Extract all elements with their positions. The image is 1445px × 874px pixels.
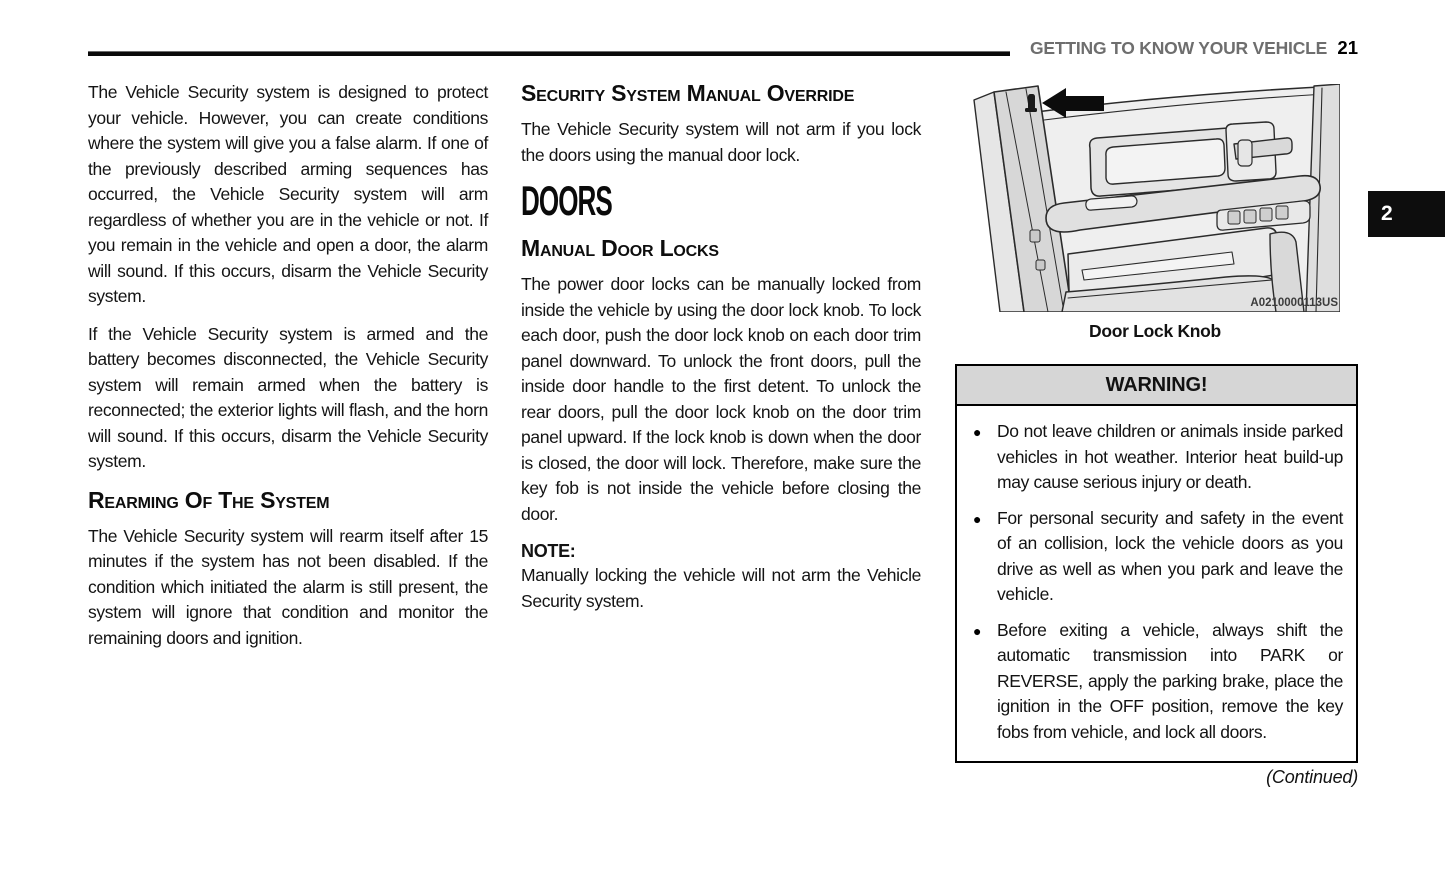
bullet-icon: ●: [973, 507, 981, 533]
paragraph-rearming: The Vehicle Security system will rearm i…: [88, 524, 488, 652]
note-text: Manually locking the vehicle will not ar…: [521, 563, 921, 614]
page-header: GETTING TO KNOW YOUR VEHICLE 21: [1030, 37, 1358, 59]
window-switch: [1260, 208, 1272, 221]
warning-bullet-text: Do not leave children or animals inside …: [997, 421, 1343, 492]
column-middle: Security System Manual Override The Vehi…: [521, 80, 921, 626]
warning-bullet: ● Before exiting a vehicle, always shift…: [968, 618, 1343, 746]
column-right: A0210000113US Door Lock Knob WARNING! ● …: [955, 84, 1358, 788]
warning-bullet: ● For personal security and safety in th…: [968, 506, 1343, 608]
figure-caption: Door Lock Knob: [970, 321, 1340, 342]
paragraph-manual-override: The Vehicle Security system will not arm…: [521, 117, 921, 168]
warning-bullet-text: For personal security and safety in the …: [997, 508, 1343, 605]
chapter-tab-number: 2: [1381, 202, 1393, 226]
warning-bullet-text: Before exiting a vehicle, always shift t…: [997, 620, 1343, 742]
column-left: The Vehicle Security system is designed …: [88, 80, 488, 663]
figure-code: A0210000113US: [1250, 297, 1338, 309]
door-lock-knob: [1028, 94, 1035, 110]
paragraph-security-design: The Vehicle Security system is designed …: [88, 80, 488, 310]
bullet-icon: ●: [973, 619, 981, 645]
warning-title: WARNING!: [957, 366, 1356, 406]
header-rule: [88, 51, 1010, 56]
window-switch: [1228, 211, 1240, 224]
pillar-clip: [1030, 230, 1040, 242]
paragraph-manual-door-locks: The power door locks can be manually loc…: [521, 272, 921, 527]
bullet-icon: ●: [973, 420, 981, 446]
warning-body: ● Do not leave children or animals insid…: [957, 406, 1356, 761]
page-number: 21: [1337, 37, 1358, 59]
heading-security-system-manual-override: Security System Manual Override: [521, 80, 921, 107]
door-panel-figure: A0210000113US: [970, 84, 1340, 312]
door-pull-cup: [1106, 139, 1225, 184]
section-title: GETTING TO KNOW YOUR VEHICLE: [1030, 38, 1327, 59]
warning-bullet: ● Do not leave children or animals insid…: [968, 419, 1343, 496]
heading-doors: DOORS: [521, 182, 921, 223]
note-label: NOTE:: [521, 541, 921, 562]
heading-rearming-of-the-system: Rearming Of The System: [88, 487, 488, 514]
pillar-clip: [1036, 260, 1045, 270]
window-switch: [1244, 210, 1256, 223]
heading-manual-door-locks: Manual Door Locks: [521, 235, 921, 262]
window-switch: [1276, 206, 1288, 219]
paragraph-battery-disconnect: If the Vehicle Security system is armed …: [88, 322, 488, 475]
continued-note: (Continued): [955, 767, 1358, 788]
chapter-tab: 2: [1368, 191, 1445, 237]
door-panel-illustration: A0210000113US: [970, 84, 1340, 312]
warning-box: WARNING! ● Do not leave children or anim…: [955, 364, 1358, 763]
